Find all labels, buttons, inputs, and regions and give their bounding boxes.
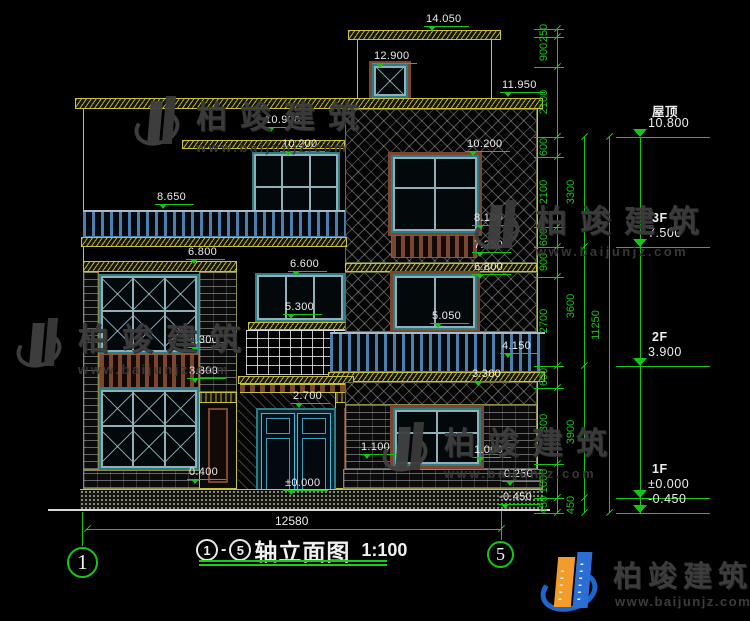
level-triangle-icon (476, 274, 484, 283)
drawing-element (436, 159, 475, 187)
dimension-text: 450 (538, 496, 550, 514)
spot-elevation-value: ±0.000 (285, 477, 320, 489)
watermark: 柏竣建筑www.baijunjz.com (382, 418, 620, 481)
spot-elevation-label: 0.400 (187, 466, 226, 480)
drawing-element (103, 392, 132, 425)
right-balcony-slab (328, 372, 545, 382)
foundation-band (80, 489, 543, 509)
brand-name: 柏竣建筑 (613, 553, 750, 595)
drawing-element (166, 278, 195, 310)
drawing-element (103, 427, 132, 466)
level-triangle-icon (191, 378, 199, 387)
entrance-pilaster-left (199, 392, 237, 500)
entrance-band (238, 376, 354, 384)
penthouse-wall-left (357, 40, 358, 98)
level-triangle-icon (506, 481, 514, 490)
level-triangle-icon (191, 479, 199, 488)
drawing-element (134, 427, 163, 466)
spot-elevation-label: 6.600 (288, 258, 327, 272)
drawing-element (311, 156, 336, 186)
terrace-railing (83, 210, 345, 237)
spot-elevation-label: 6.800 (186, 246, 225, 260)
cad-elevation-drawing: 12580 1 5 1 - 5 轴立面图 1:100 柏竣建筑 www.baij… (0, 0, 750, 621)
level-triangle-icon (633, 358, 647, 373)
drawing-element (134, 392, 163, 425)
level-triangle-icon (190, 259, 198, 268)
dimension-tick (606, 509, 613, 516)
level-triangle-icon (363, 454, 371, 463)
spot-elevation-value: 10.200 (467, 138, 502, 150)
drawing-element (134, 278, 163, 310)
level-value: 3.900 (648, 345, 682, 359)
drawing-element (397, 278, 434, 326)
wall-1f-right-upper (345, 382, 537, 406)
watermark: 柏竣建筑www.baijunjz.com (16, 314, 254, 377)
dimension-text: 900 (538, 43, 550, 61)
level-axis-line (640, 137, 641, 513)
dimension-text: 3600 (565, 294, 577, 318)
drawing-element: 柏竣建筑www.baijunjz.com (444, 418, 620, 481)
leftbay-top-band (83, 261, 237, 272)
extension-line (534, 157, 564, 158)
center-balcony-slab (248, 322, 352, 330)
spot-elevation-label: 8.650 (155, 191, 194, 205)
spot-elevation-value: 5.050 (432, 310, 461, 322)
level-triangle-icon (633, 490, 647, 505)
spot-elevation-label: 2.700 (291, 390, 330, 404)
penthouse-roof-slab (348, 30, 501, 40)
spot-elevation-value: 5.300 (285, 301, 314, 313)
level-triangle-icon (434, 323, 442, 332)
level-triangle-icon (469, 151, 477, 160)
watermark: 柏竣建筑www.baijunjz.com (474, 196, 712, 259)
spot-elevation-value: 4.150 (502, 340, 531, 352)
watermark-logo-icon (16, 317, 68, 375)
dimension-text: 2100 (538, 90, 550, 114)
watermark-url: www.baijunjz.com (536, 244, 712, 259)
dimension-text: 450 (565, 496, 577, 514)
watermark-brand: 柏竣建筑 (78, 314, 254, 359)
title-underline-2 (199, 564, 387, 566)
brand-footer: 柏竣建筑 www.baijunjz.com (533, 545, 750, 621)
drawing-element (283, 156, 308, 186)
dimension-text: 250 (538, 24, 550, 42)
spot-elevation-value: 6.800 (188, 246, 217, 258)
watermark-logo-icon (382, 421, 434, 479)
dimension-text: 11250 (590, 310, 602, 340)
title-underline-1 (199, 560, 387, 562)
level-value: ±0.000 (648, 477, 689, 491)
level-triangle-icon (501, 504, 509, 513)
watermark-brand: 柏竣建筑 (444, 418, 620, 463)
level-value: 10.800 (648, 116, 689, 130)
watermark-url: www.baijunjz.com (444, 466, 620, 481)
axis-bubble-1: 1 (67, 547, 98, 578)
spot-elevation-label: 5.050 (430, 310, 469, 324)
level-line (616, 366, 710, 367)
level-triangle-icon (633, 129, 647, 144)
level-triangle-icon (504, 92, 512, 101)
axis-bubble-5-label: 5 (496, 544, 505, 565)
window-1f-left (99, 388, 199, 470)
spot-elevation-label: 4.150 (500, 340, 539, 354)
dimension-tick (581, 509, 588, 516)
axis-bubble-1-label: 1 (77, 550, 88, 575)
axis1-leader (82, 512, 83, 546)
drawing-element: 柏竣建筑www.baijunjz.com (78, 314, 254, 377)
level-triangle-icon (376, 63, 384, 72)
brand-url: www.baijunjz.com (615, 594, 750, 609)
level-triangle-icon (428, 26, 436, 35)
spot-elevation-label: 6.800 (472, 261, 511, 275)
drawing-element (436, 189, 475, 229)
watermark-logo-icon (134, 95, 186, 153)
dimension-text: 600 (538, 138, 550, 156)
drawing-element (395, 189, 434, 229)
level-name: 2F (652, 330, 668, 344)
penthouse-wall-right (491, 40, 492, 98)
level-triangle-icon (474, 381, 482, 390)
level-line (616, 513, 710, 514)
spot-elevation-value: 11.950 (502, 79, 537, 91)
spot-elevation-label: 14.050 (424, 13, 469, 27)
spot-elevation-value: 8.650 (157, 191, 186, 203)
title-scale: 1:100 (361, 540, 407, 561)
spot-elevation-value: 3.300 (472, 368, 501, 380)
level-line (616, 137, 710, 138)
title-axis-to: 5 (229, 539, 251, 561)
level-triangle-icon (159, 204, 167, 213)
level-name: 1F (652, 462, 668, 476)
drawing-element (259, 277, 285, 318)
drawing-element: 柏竣建筑www.baijunjz.com (196, 92, 372, 155)
drawing-element (266, 418, 290, 434)
watermark-url: www.baijunjz.com (196, 140, 372, 155)
extension-line (534, 277, 564, 278)
drawing-element (256, 156, 281, 186)
spot-elevation-value: 6.600 (290, 258, 319, 270)
spot-elevation-label: 12.900 (372, 50, 417, 64)
watermark-brand: 柏竣建筑 (536, 196, 712, 241)
level-triangle-icon (287, 314, 295, 323)
watermark-logo-icon (474, 199, 526, 257)
level-triangle-icon (633, 505, 647, 520)
spot-elevation-value: 0.400 (189, 466, 218, 478)
brand-logo-icon (538, 549, 610, 617)
drawing-element (166, 427, 195, 466)
drawing-element: 柏竣建筑www.baijunjz.com (536, 196, 712, 259)
bottom-dim-line (87, 529, 501, 530)
title-axis-from: 1 (196, 539, 218, 561)
drawing-element (395, 159, 434, 187)
axis-bubble-5: 5 (487, 541, 514, 568)
drawing-element (200, 393, 236, 403)
spot-elevation-value: 6.800 (474, 261, 503, 273)
level-triangle-icon (504, 353, 512, 362)
window-3f-right (391, 155, 479, 233)
level-value: -0.450 (648, 492, 686, 506)
spot-elevation-value: 2.700 (293, 390, 322, 402)
drawing-element (103, 278, 132, 310)
spot-elevation-label: 5.300 (283, 301, 322, 315)
level-triangle-icon (292, 271, 300, 280)
slat-band-3f-right (391, 235, 477, 258)
spot-elevation-value: 12.900 (374, 50, 409, 62)
dimension-text: 2700 (538, 309, 550, 333)
bottom-dim-text: 12580 (275, 514, 308, 528)
spot-elevation-label: ±0.000 (283, 477, 328, 491)
drawing-element (166, 392, 195, 425)
spot-elevation-label: 3.300 (470, 368, 509, 382)
spot-elevation-value: 14.050 (426, 13, 461, 25)
ground-line (48, 509, 550, 511)
title-separator: - (221, 541, 226, 559)
spot-elevation-label: 10.200 (465, 138, 510, 152)
watermark: 柏竣建筑www.baijunjz.com (134, 92, 372, 155)
extension-line (534, 388, 564, 389)
watermark-brand: 柏竣建筑 (196, 92, 372, 137)
extension-line (534, 67, 564, 68)
level-triangle-icon (295, 403, 303, 412)
watermark-url: www.baijunjz.com (78, 362, 254, 377)
dimension-text: 600 (538, 368, 550, 386)
drawing-element (302, 418, 326, 434)
level-triangle-icon (287, 490, 295, 499)
spot-elevation-value: -0.450 (499, 491, 532, 503)
